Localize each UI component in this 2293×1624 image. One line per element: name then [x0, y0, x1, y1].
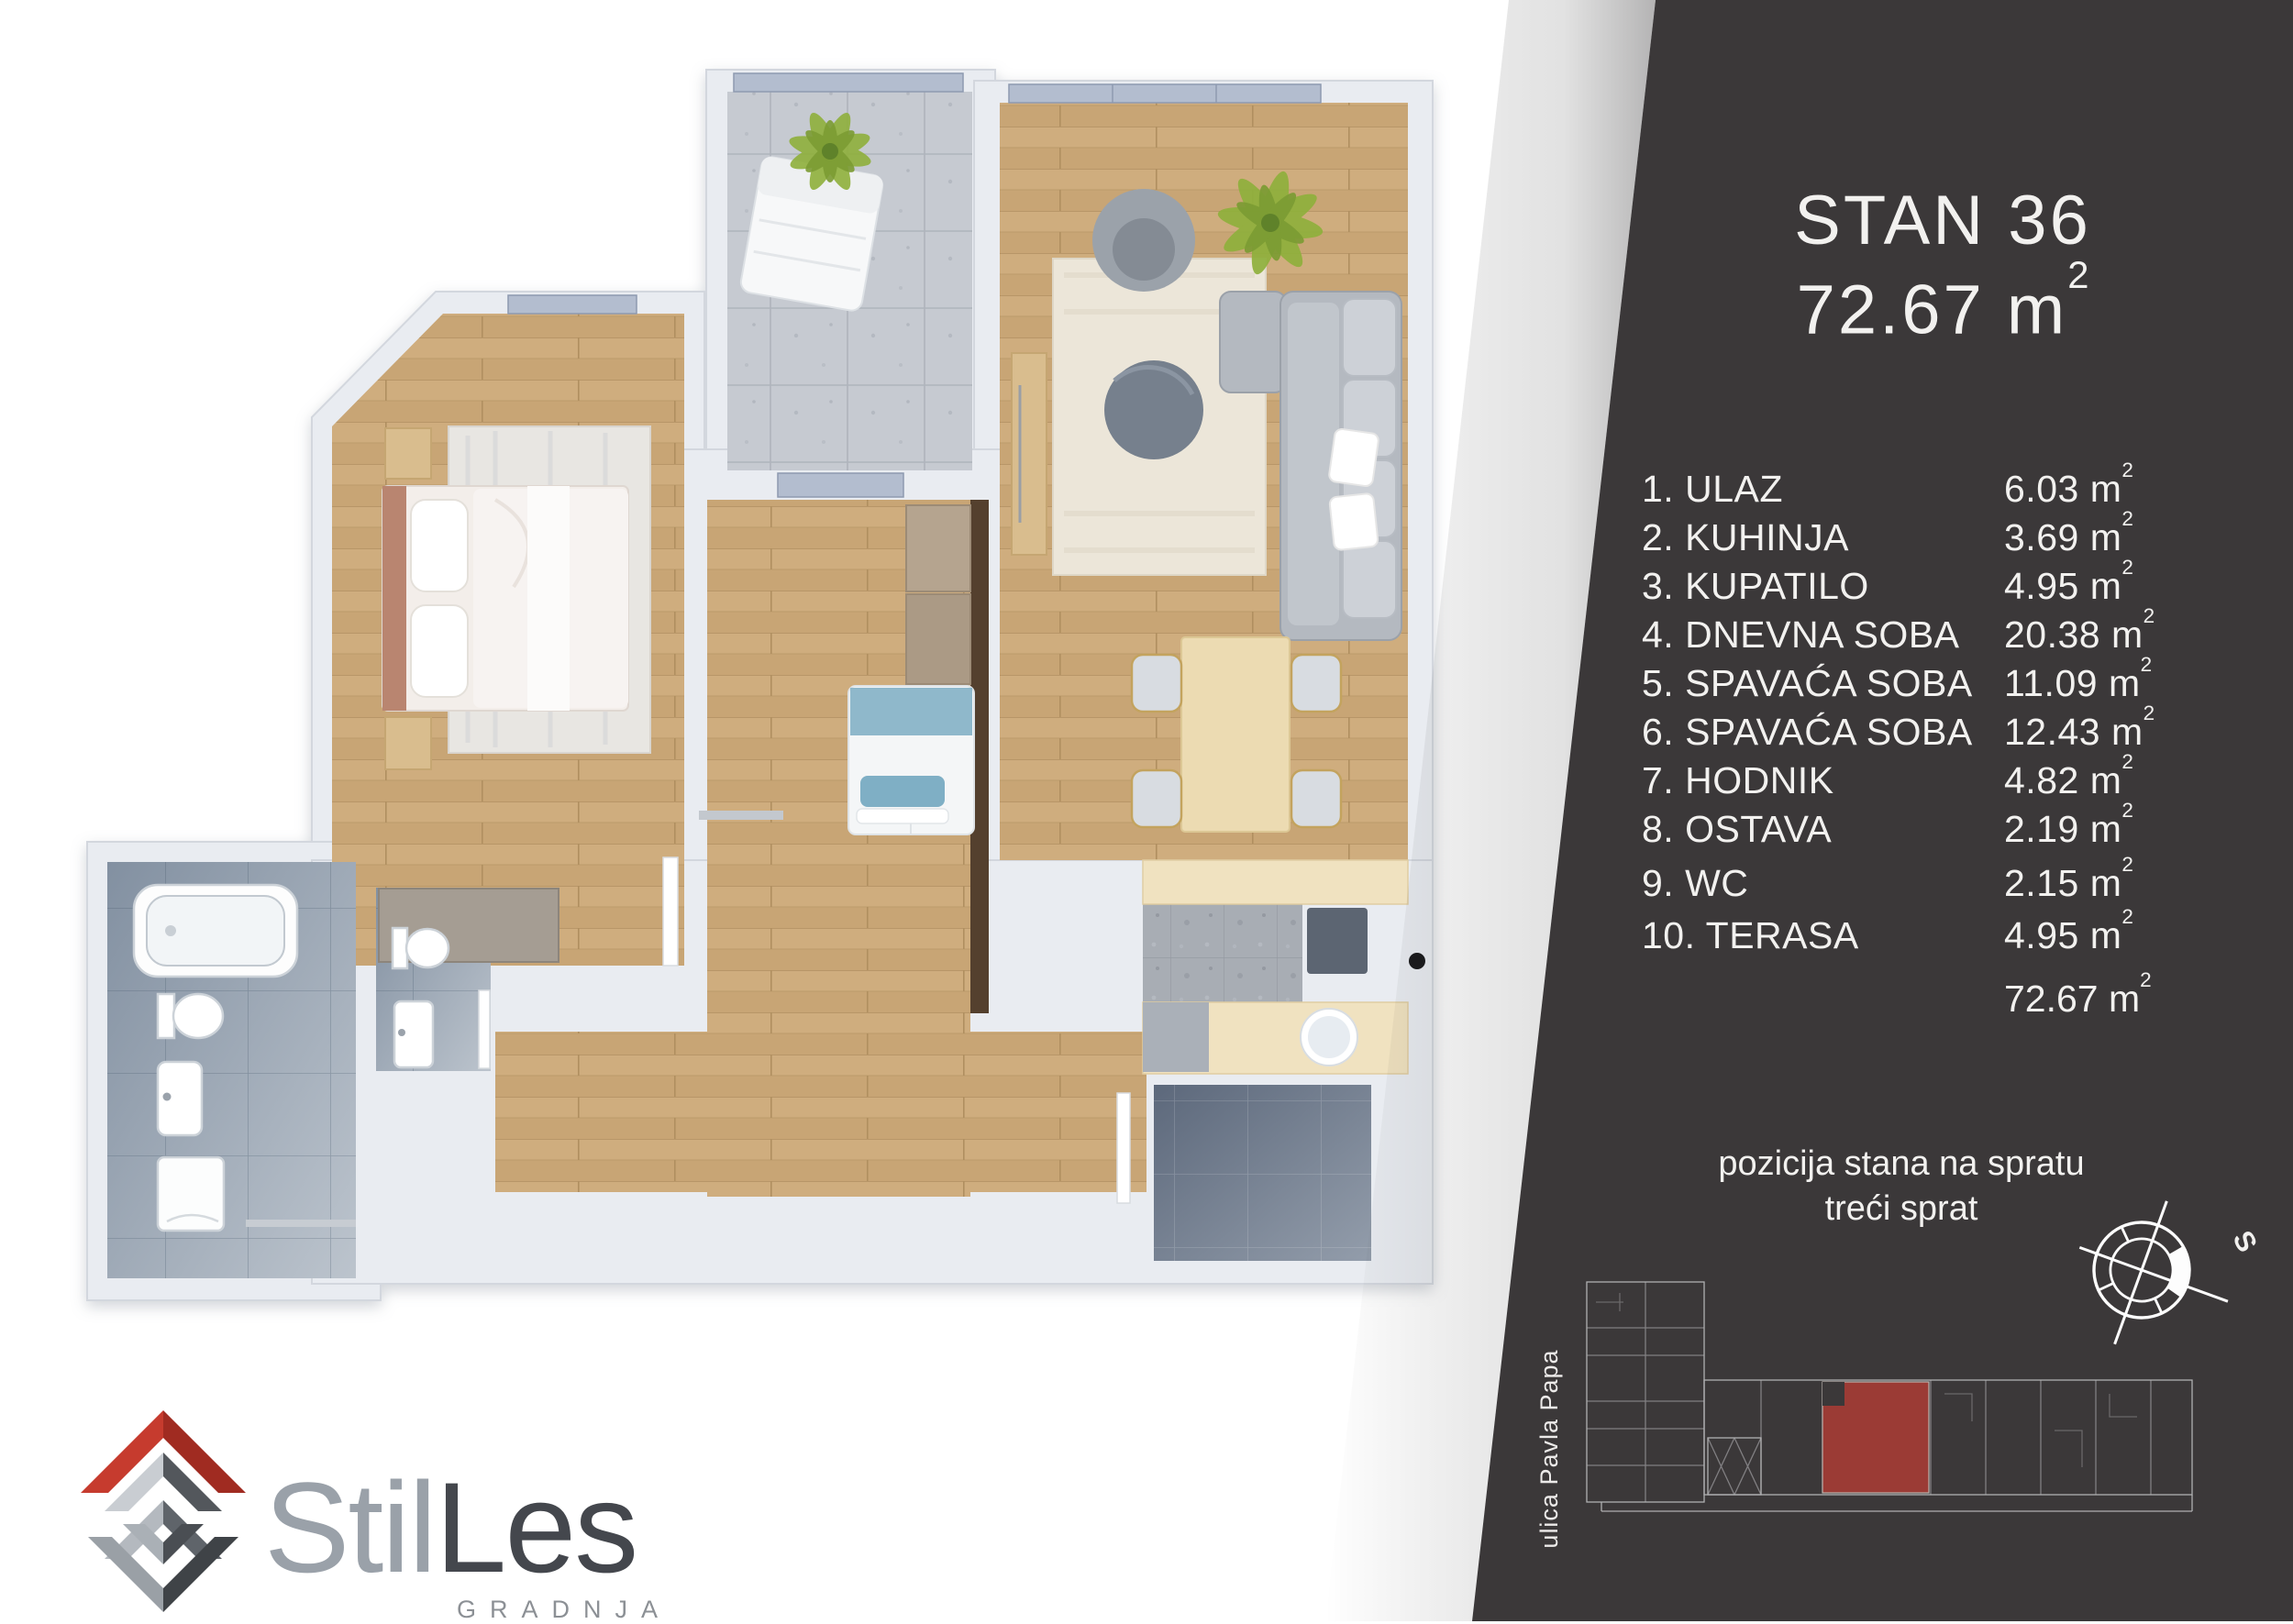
wc-door — [479, 990, 490, 1068]
dining-table — [1181, 637, 1290, 832]
room-name: 3. KUPATILO — [1642, 565, 1869, 608]
room-name: 9. WC — [1642, 862, 1748, 905]
brand-subtitle: GRADNJA — [457, 1596, 671, 1624]
wc-toilet — [406, 929, 449, 967]
room-name: 6. SPAVAĆA SOBA — [1642, 711, 1973, 754]
sofa-pillow — [1328, 428, 1379, 487]
room-area: 4.95 m2 — [2004, 565, 2133, 608]
sofa-pillow — [1329, 493, 1379, 551]
nightstand — [385, 428, 431, 479]
toilet — [173, 994, 223, 1038]
stove — [1307, 908, 1368, 974]
corridor-window — [778, 473, 903, 497]
room-name: 1. ULAZ — [1642, 468, 1783, 511]
wc-toilet-tank — [393, 928, 407, 968]
brand-name: StilLes — [264, 1464, 637, 1592]
room-name: 8. OSTAVA — [1642, 808, 1832, 851]
bed-headboard — [382, 486, 406, 711]
floorplan-poster: { "panel": { "bg_color": "#3b3839", "acc… — [0, 0, 2293, 1621]
kitchen-counter — [1143, 860, 1408, 904]
toilet-tank — [158, 994, 174, 1038]
bed-throw — [850, 688, 972, 735]
room-area: 4.95 m2 — [2004, 914, 2133, 957]
room-list: 1. ULAZ6.03 m22. KUHINJA3.69 m23. KUPATI… — [1642, 0, 2247, 1009]
wardrobe-door — [906, 594, 970, 684]
room-area: 3.69 m2 — [2004, 516, 2133, 559]
wardrobe-door — [906, 505, 970, 591]
sofa-chaise — [1220, 292, 1286, 392]
position-note-line1: pozicija stana na spratu — [1672, 1144, 2131, 1184]
room-area: 2.15 m2 — [2004, 862, 2133, 905]
bed-runner — [527, 486, 570, 711]
bedroom1-window — [508, 295, 637, 314]
room-name: 10. TERASA — [1642, 914, 1859, 957]
street-name: ulica Pavla Papa — [1535, 1302, 1568, 1596]
apartment-floor-plan — [87, 70, 1433, 1300]
room-name: 5. SPAVAĆA SOBA — [1642, 662, 1973, 705]
position-note-line2: treći sprat — [1672, 1189, 2131, 1229]
bed-pillow-white — [857, 809, 948, 823]
bed-pillow-teal — [860, 776, 945, 807]
room-area: 6.03 m2 — [2004, 468, 2133, 511]
towel-shelf — [246, 1220, 356, 1227]
terrace-window — [734, 73, 963, 92]
room-area: 2.19 m2 — [2004, 808, 2133, 851]
nightstand — [385, 717, 431, 769]
hall-door — [1117, 1093, 1130, 1203]
kitchen-mat — [1143, 1002, 1209, 1072]
room-area: 4.82 m2 — [2004, 759, 2133, 802]
hall-floor — [495, 1032, 1146, 1192]
room-area: 20.38 m2 — [2004, 613, 2155, 657]
room-area: 12.43 m2 — [2004, 711, 2155, 754]
sideboard — [1012, 353, 1047, 555]
bedroom-door — [663, 857, 678, 966]
room-name: 7. HODNIK — [1642, 759, 1834, 802]
living-window — [1009, 84, 1321, 103]
bed-pillow — [411, 500, 468, 591]
room-name: 4. DNEVNA SOBA — [1642, 613, 1960, 657]
room-area: 11.09 m2 — [2004, 662, 2152, 705]
logo-mark — [81, 1410, 246, 1612]
room-name: 2. KUHINJA — [1642, 516, 1849, 559]
bed-pillow — [411, 605, 468, 697]
kitchen-floor — [1143, 904, 1302, 1002]
total-area: 72.67 m2 — [2004, 978, 2152, 1021]
wall-shelf — [699, 811, 783, 820]
